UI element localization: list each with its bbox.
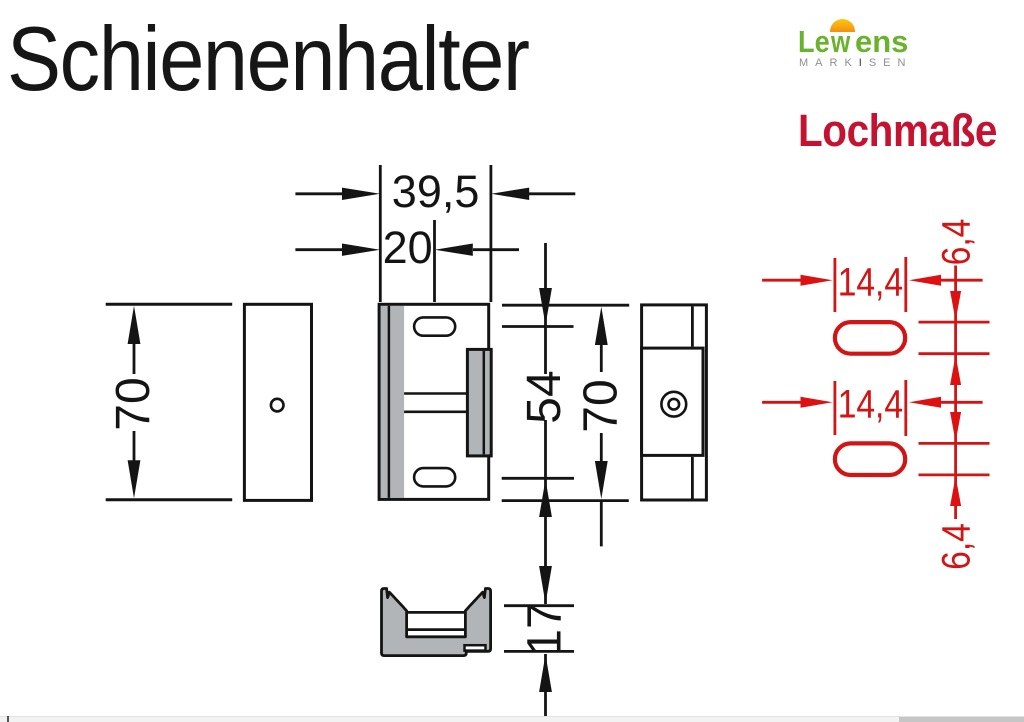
svg-text:14,4: 14,4: [838, 382, 903, 426]
svg-text:39,5: 39,5: [392, 166, 480, 217]
svg-text:70: 70: [574, 379, 627, 432]
svg-text:54: 54: [518, 370, 571, 423]
svg-text:20: 20: [383, 222, 433, 273]
svg-text:70: 70: [107, 377, 160, 430]
svg-text:6,4: 6,4: [934, 523, 978, 570]
svg-text:6,4: 6,4: [934, 219, 978, 266]
svg-text:17: 17: [519, 602, 572, 655]
svg-text:14,4: 14,4: [838, 260, 903, 304]
